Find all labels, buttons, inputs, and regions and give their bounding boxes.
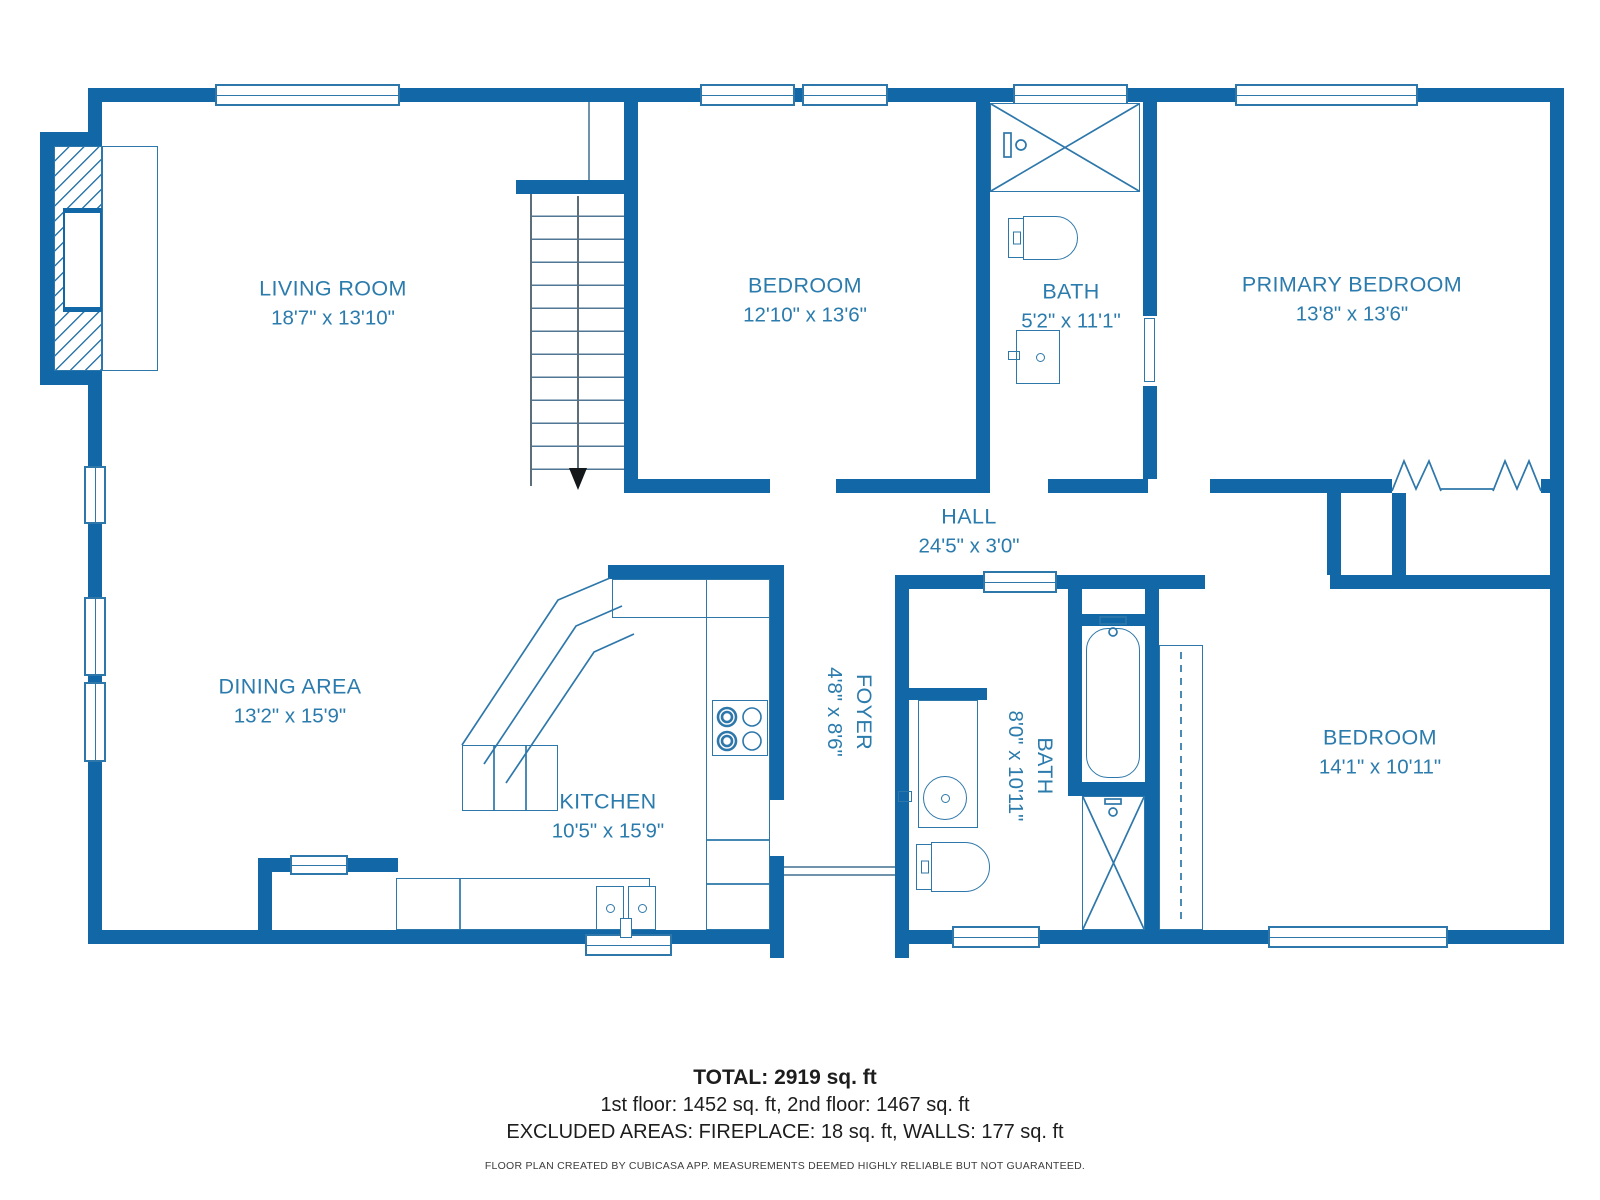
- room-name: BEDROOM: [743, 272, 867, 299]
- room-name: LIVING ROOM: [259, 275, 407, 302]
- room-label-primary-bedroom: PRIMARY BEDROOM 13'8" x 13'6": [1242, 271, 1462, 327]
- room-label-bedroom-bottom: BEDROOM 14'1" x 10'11": [1319, 724, 1441, 780]
- shower: [1082, 796, 1145, 930]
- fireplace-wall: [40, 132, 54, 385]
- ceiling-break-line: [588, 102, 590, 180]
- room-dims: 14'1" x 10'11": [1319, 754, 1441, 780]
- area-summary: TOTAL: 2919 sq. ft 1st floor: 1452 sq. f…: [0, 1066, 1570, 1144]
- toilet: [1008, 216, 1078, 260]
- vanity-tab: [898, 791, 912, 802]
- window: [215, 84, 400, 106]
- wall: [770, 565, 784, 958]
- room-label-bedroom-top: BEDROOM 12'10" x 13'6": [743, 272, 867, 328]
- window: [84, 466, 106, 524]
- toilet-bowl: [1023, 216, 1078, 260]
- window: [1268, 926, 1448, 948]
- room-dims: 24'5" x 3'0": [918, 533, 1019, 559]
- wall: [1143, 102, 1157, 479]
- room-dims: 12'10" x 13'6": [743, 302, 867, 328]
- room-label-living-room: LIVING ROOM 18'7" x 13'10": [259, 275, 407, 331]
- toilet: [916, 842, 990, 892]
- window: [84, 682, 106, 762]
- sink-drain: [606, 904, 615, 913]
- room-name: BATH: [1021, 278, 1121, 305]
- wall: [1541, 479, 1564, 493]
- floor-areas: 1st floor: 1452 sq. ft, 2nd floor: 1467 …: [0, 1094, 1570, 1117]
- room-dims: 18'7" x 13'10": [259, 305, 407, 331]
- room-dims: 13'8" x 13'6": [1242, 301, 1462, 327]
- disclaimer: FLOOR PLAN CREATED BY CUBICASA APP. MEAS…: [0, 1160, 1570, 1172]
- wall: [895, 688, 987, 700]
- staircase: [530, 194, 624, 486]
- closet-bifold-doors: [1392, 461, 1541, 491]
- wall: [1550, 88, 1564, 944]
- kitchen-foyer-opening: [768, 800, 786, 856]
- room-dims: 13'2" x 15'9": [219, 703, 362, 729]
- room-dims: 10'5" x 15'9": [552, 818, 664, 844]
- fireplace-wall: [40, 132, 102, 146]
- window: [802, 84, 888, 106]
- stair-wall: [516, 180, 638, 194]
- kitchen-faucet: [620, 918, 632, 938]
- door-leaf: [1144, 318, 1155, 382]
- window: [1235, 84, 1418, 106]
- window: [84, 597, 106, 676]
- room-name: PRIMARY BEDROOM: [1242, 271, 1462, 298]
- room-label-foyer: FOYER 4'8" x 8'6": [821, 667, 877, 757]
- room-label-bath-top: BATH 5'2" x 11'1": [1021, 278, 1121, 334]
- sink-drain: [638, 904, 647, 913]
- wall: [836, 479, 990, 493]
- room-label-dining-area: DINING AREA 13'2" x 15'9": [219, 673, 362, 729]
- floor-plan: LIVING ROOM 18'7" x 13'10" BEDROOM 12'10…: [0, 0, 1600, 1200]
- closet-wall: [1392, 493, 1406, 575]
- room-label-hall: HALL 24'5" x 3'0": [918, 503, 1019, 559]
- room-name: KITCHEN: [552, 788, 664, 815]
- wall: [1048, 479, 1148, 493]
- wall: [624, 102, 638, 493]
- window: [952, 926, 1040, 948]
- room-dims: 4'8" x 8'6": [821, 667, 847, 757]
- wall: [1330, 575, 1564, 589]
- fireplace-firebox: [63, 208, 102, 312]
- wall: [608, 565, 784, 579]
- wall: [624, 479, 770, 493]
- fireplace-hearth: [102, 146, 158, 371]
- room-name: DINING AREA: [219, 673, 362, 700]
- room-name: FOYER: [850, 667, 877, 757]
- wall: [1068, 782, 1159, 796]
- sink-drain: [1036, 353, 1045, 362]
- room-name: BEDROOM: [1319, 724, 1441, 751]
- bath-door-opening: [983, 571, 1057, 593]
- room-name: BATH: [1031, 711, 1058, 822]
- wardrobe: [1159, 645, 1203, 930]
- step-line: [784, 874, 895, 876]
- wall: [258, 858, 272, 930]
- toilet-bowl: [931, 842, 990, 892]
- room-name: HALL: [918, 503, 1019, 530]
- room-dims: 8'0" x 10'11": [1002, 711, 1028, 822]
- step-line: [784, 866, 895, 868]
- excluded-areas: EXCLUDED AREAS: FIREPLACE: 18 sq. ft, WA…: [0, 1121, 1570, 1144]
- window: [290, 855, 348, 875]
- vanity-tab: [1008, 351, 1020, 360]
- shower: [990, 103, 1140, 192]
- total-area: TOTAL: 2919 sq. ft: [0, 1066, 1570, 1090]
- stove: [712, 700, 768, 756]
- wall: [1080, 614, 1145, 626]
- window: [700, 84, 795, 106]
- sink-drain: [941, 794, 950, 803]
- wall: [976, 102, 990, 479]
- room-label-bath-bottom: BATH 8'0" x 10'11": [1002, 711, 1058, 822]
- wall: [1145, 589, 1159, 930]
- room-label-kitchen: KITCHEN 10'5" x 15'9": [552, 788, 664, 844]
- wall: [895, 575, 909, 958]
- peninsula-cabinet: [462, 745, 558, 811]
- wall: [1210, 479, 1392, 493]
- bathtub: [1086, 628, 1140, 778]
- closet-wall: [1327, 493, 1341, 575]
- fireplace-wall: [40, 371, 102, 385]
- room-dims: 5'2" x 11'1": [1021, 308, 1121, 334]
